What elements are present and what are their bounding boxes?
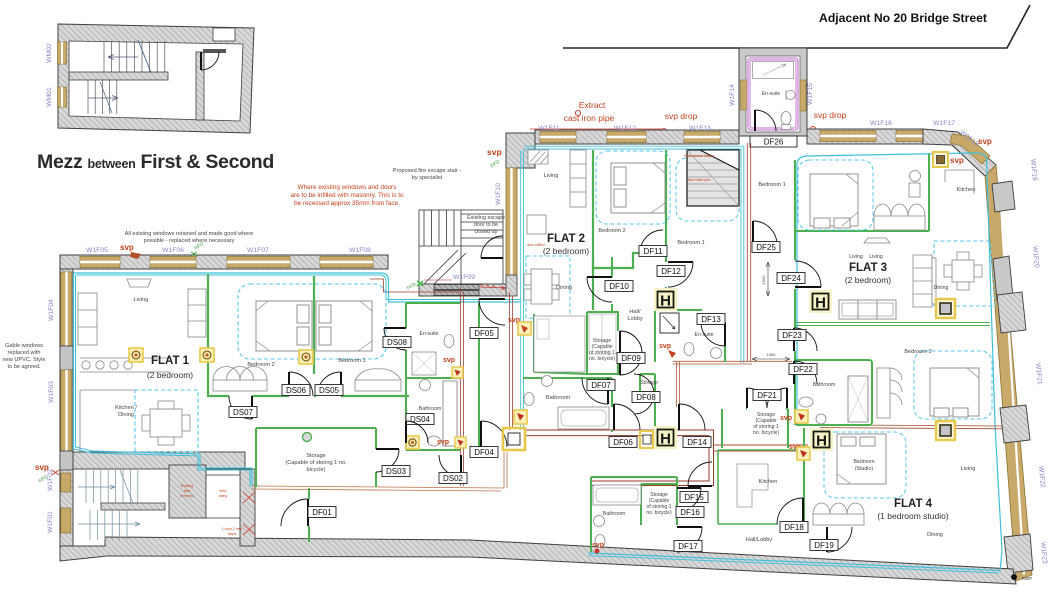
svg-text:Existing escape: Existing escape <box>467 215 505 221</box>
svg-text:Hall/Lobby: Hall/Lobby <box>746 537 773 543</box>
svg-text:stair: stair <box>184 489 192 493</box>
svg-text:Kitchen /: Kitchen / <box>115 405 137 411</box>
svg-text:Gable windows: Gable windows <box>5 343 43 349</box>
svg-text:W1F02: W1F02 <box>47 469 54 491</box>
svg-text:are to be infilled with masonr: are to be infilled with masonry. This is… <box>290 192 404 199</box>
svg-text:W1F13: W1F13 <box>689 125 711 132</box>
svg-text:DF17: DF17 <box>678 542 698 551</box>
svg-text:closed up: closed up <box>474 229 497 235</box>
svg-text:Living: Living <box>849 254 863 260</box>
svg-text:svp: svp <box>978 137 992 146</box>
svg-text:DF11: DF11 <box>644 247 664 256</box>
svg-text:svp: svp <box>780 415 792 422</box>
svg-text:W1F17: W1F17 <box>933 120 955 127</box>
svg-text:DF22: DF22 <box>793 365 813 374</box>
svg-text:Bathroom: Bathroom <box>813 382 836 388</box>
svg-text:Adjacent No 20 Bridge Street: Adjacent No 20 Bridge Street <box>819 11 987 25</box>
svg-text:(2 bedroom): (2 bedroom) <box>845 275 891 285</box>
svg-text:Bedroom 2: Bedroom 2 <box>598 228 625 234</box>
svg-text:door to be: door to be <box>474 222 498 228</box>
svg-text:WM01: WM01 <box>46 87 53 107</box>
svg-text:DF21: DF21 <box>757 391 777 400</box>
svg-text:WM02: WM02 <box>46 43 53 63</box>
svg-text:Living: Living <box>961 466 976 472</box>
svg-text:FLAT 1: FLAT 1 <box>151 355 190 367</box>
svg-text:W1F04: W1F04 <box>48 299 55 321</box>
svg-text:DS06: DS06 <box>286 386 307 395</box>
svg-text:DS07: DS07 <box>233 408 254 417</box>
svg-text:W1F05: W1F05 <box>86 247 108 254</box>
svg-text:H: H <box>815 295 826 312</box>
svg-text:Bathroom: Bathroom <box>603 511 626 517</box>
svg-text:W1F11: W1F11 <box>538 125 560 132</box>
svg-text:svp drop: svp drop <box>814 110 847 120</box>
svg-text:svp: svp <box>120 243 134 252</box>
svg-text:DS02: DS02 <box>443 474 464 483</box>
svg-text:Hall/: Hall/ <box>629 309 641 315</box>
svg-text:Kitchen: Kitchen <box>957 187 976 193</box>
svg-text:DF16: DF16 <box>680 508 700 517</box>
svg-text:DF18: DF18 <box>784 523 804 532</box>
svg-text:RWP: RWP <box>1022 576 1032 581</box>
svg-text:lobby: lobby <box>219 494 228 498</box>
svg-text:no. bicycle): no. bicycle) <box>753 430 780 436</box>
svg-text:DF01: DF01 <box>312 508 332 517</box>
svg-text:Extract: Extract <box>579 100 606 110</box>
svg-text:Bathroom: Bathroom <box>419 406 442 412</box>
svg-text:W1F01: W1F01 <box>47 511 54 533</box>
svg-text:(Capable of storing 1 no.: (Capable of storing 1 no. <box>285 460 347 466</box>
svg-text:W1F06: W1F06 <box>162 247 184 254</box>
svg-text:(Studio): (Studio) <box>855 466 873 472</box>
svg-text:DF25: DF25 <box>756 243 776 252</box>
svg-text:by specialist: by specialist <box>412 175 443 181</box>
svg-text:DF08: DF08 <box>636 393 656 402</box>
svg-text:svp: svp <box>592 542 604 549</box>
svg-text:DS08: DS08 <box>387 338 408 347</box>
svg-text:DF05: DF05 <box>474 329 494 338</box>
svg-text:door infilled: door infilled <box>527 243 544 247</box>
svg-text:Proposed fire escape stair -: Proposed fire escape stair - <box>393 168 462 174</box>
svg-text:Bedroom: Bedroom <box>853 459 874 465</box>
svg-text:Dining: Dining <box>927 532 943 538</box>
svg-text:Dining: Dining <box>556 285 572 291</box>
svg-text:(2 bedroom): (2 bedroom) <box>147 370 193 380</box>
svg-text:removed: removed <box>180 494 194 498</box>
svg-text:All existing windows retained: All existing windows retained and made g… <box>125 231 254 237</box>
svg-text:svp: svp <box>35 463 49 472</box>
svg-text:East window infilled: East window infilled <box>684 154 714 158</box>
svg-text:to be agreed.: to be agreed. <box>8 364 41 370</box>
svg-text:(1 bedroom studio): (1 bedroom studio) <box>877 511 949 521</box>
svg-text:svp: svp <box>443 357 455 364</box>
svg-text:1550: 1550 <box>761 275 766 285</box>
svg-text:W1F08: W1F08 <box>349 247 371 254</box>
svg-text:DF13: DF13 <box>701 315 721 324</box>
svg-text:En-suite: En-suite <box>694 332 713 338</box>
svg-text:Living: Living <box>544 173 559 179</box>
svg-text:Existing: Existing <box>181 484 194 488</box>
svg-text:new UPVC. Style: new UPVC. Style <box>3 357 46 363</box>
svg-text:FLAT 4: FLAT 4 <box>894 498 933 510</box>
svg-text:En-suite: En-suite <box>419 331 438 337</box>
svg-text:DF14: DF14 <box>687 438 707 447</box>
svg-text:cast iron pipe: cast iron pipe <box>564 113 615 123</box>
svg-text:Where existing windows and doo: Where existing windows and doors <box>298 184 397 191</box>
svg-text:no. bicycle): no. bicycle) <box>589 356 616 362</box>
svg-text:(2 bedroom): (2 bedroom) <box>543 246 589 256</box>
svg-text:Lobby: Lobby <box>627 316 642 322</box>
svg-text:svp: svp <box>950 156 964 165</box>
svg-text:svp: svp <box>437 439 449 446</box>
svg-text:be recessed approx 35mm from f: be recessed approx 35mm from face. <box>294 200 400 207</box>
svg-text:DS05: DS05 <box>319 386 340 395</box>
svg-text:Bedroom 2: Bedroom 2 <box>247 362 274 368</box>
svg-text:W1F10: W1F10 <box>495 183 502 205</box>
svg-text:DF12: DF12 <box>661 267 681 276</box>
svg-text:DS03: DS03 <box>386 467 407 476</box>
svg-text:FLAT 3: FLAT 3 <box>849 262 887 274</box>
svg-text:H: H <box>660 293 671 310</box>
svg-text:DS04: DS04 <box>410 415 431 424</box>
svg-text:FLAT 2: FLAT 2 <box>547 233 585 245</box>
svg-text:svp: svp <box>487 147 502 157</box>
svg-text:W1F14: W1F14 <box>729 84 736 106</box>
svg-text:W1F03: W1F03 <box>48 381 55 403</box>
svg-text:1 hour 2 new: 1 hour 2 new <box>222 527 243 531</box>
svg-text:DF10: DF10 <box>609 282 629 291</box>
svg-text:New lintel spec: New lintel spec <box>688 178 711 182</box>
svg-text:W1F09: W1F09 <box>453 274 475 281</box>
svg-text:En-suite: En-suite <box>762 91 781 97</box>
svg-text:DF15: DF15 <box>684 493 704 502</box>
svg-text:Dining: Dining <box>934 285 949 291</box>
svg-text:Bedroom 2: Bedroom 2 <box>904 349 931 355</box>
svg-text:DF09: DF09 <box>621 354 641 363</box>
svg-text:H: H <box>816 433 827 450</box>
svg-text:DF23: DF23 <box>782 331 802 340</box>
svg-text:possible - replaced where nece: possible - replaced where necessary <box>144 238 235 244</box>
svg-text:W1F15: W1F15 <box>807 83 814 105</box>
svg-text:Bathroom: Bathroom <box>546 395 571 401</box>
svg-text:bicycle): bicycle) <box>307 467 326 473</box>
svg-text:Living: Living <box>869 254 883 260</box>
svg-text:Dining: Dining <box>118 412 134 418</box>
svg-text:Storage: Storage <box>306 453 326 459</box>
svg-text:no. bicycle): no. bicycle) <box>646 510 672 516</box>
svg-text:Mezz between First & Second: Mezz between First & Second <box>37 151 274 173</box>
svg-text:Bedroom 1: Bedroom 1 <box>677 240 704 246</box>
svg-text:DF26: DF26 <box>764 138 784 147</box>
svg-text:svp drop: svp drop <box>665 111 698 121</box>
svg-text:Living: Living <box>134 297 149 303</box>
svg-text:steps: steps <box>228 532 237 536</box>
svg-text:New: New <box>219 489 227 493</box>
svg-text:DF19: DF19 <box>814 541 834 550</box>
svg-text:W1F16: W1F16 <box>870 120 892 127</box>
svg-text:Bedroom 1: Bedroom 1 <box>758 182 785 188</box>
svg-text:W1F07: W1F07 <box>247 247 269 254</box>
svg-text:DF24: DF24 <box>781 274 801 283</box>
svg-text:DF07: DF07 <box>591 381 611 390</box>
svg-text:DF04: DF04 <box>474 448 494 457</box>
svg-text:DF06: DF06 <box>613 438 633 447</box>
svg-text:1550: 1550 <box>767 352 777 357</box>
svg-text:W1F12: W1F12 <box>614 125 636 132</box>
svg-text:replaced with: replaced with <box>8 350 41 356</box>
svg-text:Bedroom 1: Bedroom 1 <box>338 358 365 364</box>
svg-text:svp: svp <box>659 343 671 350</box>
svg-text:H: H <box>660 431 671 448</box>
